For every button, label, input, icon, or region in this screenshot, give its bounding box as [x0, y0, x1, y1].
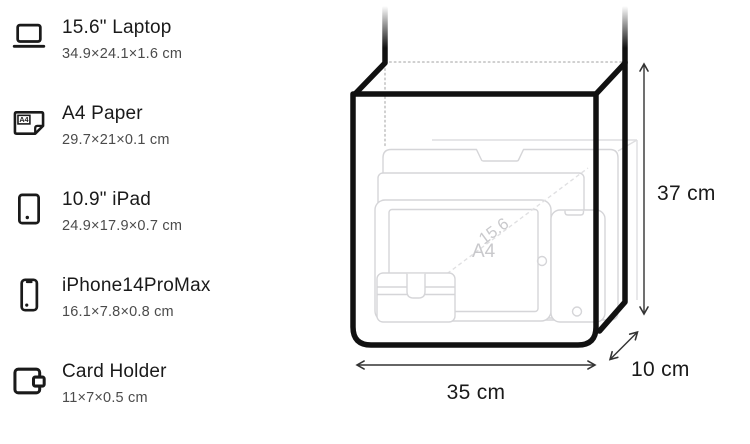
item-dimensions: 16.1×7.8×0.8 cm	[62, 303, 211, 321]
iphone-icon	[10, 276, 48, 314]
a4-paper-icon: A4	[10, 104, 48, 142]
list-item-card-holder: Card Holder 11×7×0.5 cm	[0, 358, 330, 444]
item-dimensions: 11×7×0.5 cm	[62, 389, 167, 407]
item-name: 10.9" iPad	[62, 188, 182, 211]
ipad-icon	[10, 190, 48, 228]
list-item-iphone: iPhone14ProMax 16.1×7.8×0.8 cm	[0, 272, 330, 358]
item-name: Card Holder	[62, 360, 167, 383]
width-label: 35 cm	[447, 381, 506, 404]
card-holder-icon	[10, 362, 48, 400]
depth-label: 10 cm	[631, 358, 690, 381]
bag-hidden-edges	[385, 62, 625, 147]
item-dimensions: 24.9×17.9×0.7 cm	[62, 217, 182, 235]
item-dimensions: 34.9×24.1×1.6 cm	[62, 45, 182, 63]
item-list: 15.6" Laptop 34.9×24.1×1.6 cm A4 A4 Pape…	[0, 0, 330, 426]
item-dimensions: 29.7×21×0.1 cm	[62, 131, 170, 149]
bag-dimension-diagram: A4 15.6 37 cm 35 cm 10 cm	[330, 0, 750, 426]
bag-top-right-depth-edge	[596, 63, 625, 94]
list-item-ipad: 10.9" iPad 24.9×17.9×0.7 cm	[0, 186, 330, 272]
laptop-icon	[10, 18, 48, 56]
bag-top-left-depth-edge	[355, 63, 385, 94]
height-label: 37 cm	[657, 182, 716, 205]
item-name: A4 Paper	[62, 102, 170, 125]
depth-arrow	[610, 332, 638, 360]
list-item-a4-paper: A4 A4 Paper 29.7×21×0.1 cm	[0, 100, 330, 186]
item-name: 15.6" Laptop	[62, 16, 182, 39]
item-name: iPhone14ProMax	[62, 274, 211, 297]
card-holder-tab	[407, 274, 425, 298]
a4-icon-label: A4	[19, 115, 28, 124]
list-item-laptop: 15.6" Laptop 34.9×24.1×1.6 cm	[0, 14, 330, 100]
